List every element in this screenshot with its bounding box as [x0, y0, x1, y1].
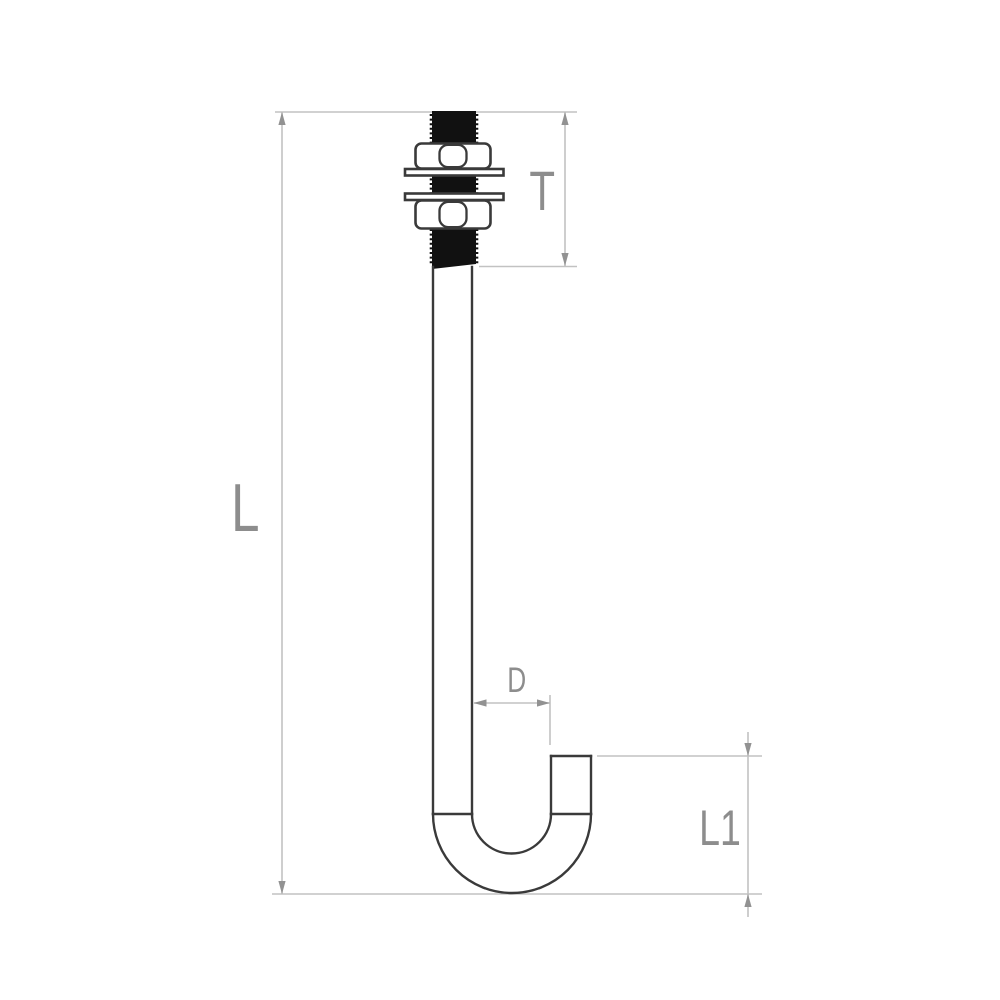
threaded-section [432, 111, 476, 269]
drawing-canvas: L T D L1 [0, 0, 1000, 1000]
hook-inner-arc [472, 814, 551, 854]
washer-bottom [405, 194, 504, 201]
label-hook-height-L1: L1 [699, 801, 741, 856]
dimension-arrows [278, 112, 751, 907]
arrow-up-icon [561, 112, 568, 125]
nut-body [416, 144, 491, 169]
label-thread-length-T: T [529, 160, 555, 222]
label-overall-length-L: L [231, 470, 259, 546]
dimension-lines [272, 112, 762, 917]
arrow-down-icon [561, 253, 568, 266]
arrow-left-icon [474, 699, 487, 706]
j-bolt [405, 111, 591, 893]
hex-nut-top [416, 144, 491, 169]
arrow-up-icon [744, 894, 751, 907]
hex-nut-bottom [416, 201, 491, 229]
arrow-right-icon [537, 699, 550, 706]
nut-body [416, 201, 491, 229]
washer-top [405, 169, 504, 176]
j-bolt-dimension-drawing: L T D L1 [0, 0, 1000, 1000]
arrow-down-icon [744, 743, 751, 756]
arrow-up-icon [278, 112, 285, 125]
label-hook-diameter-D: D [507, 660, 526, 700]
dimension-labels: L T D L1 [231, 160, 741, 856]
arrow-down-icon [278, 881, 285, 894]
